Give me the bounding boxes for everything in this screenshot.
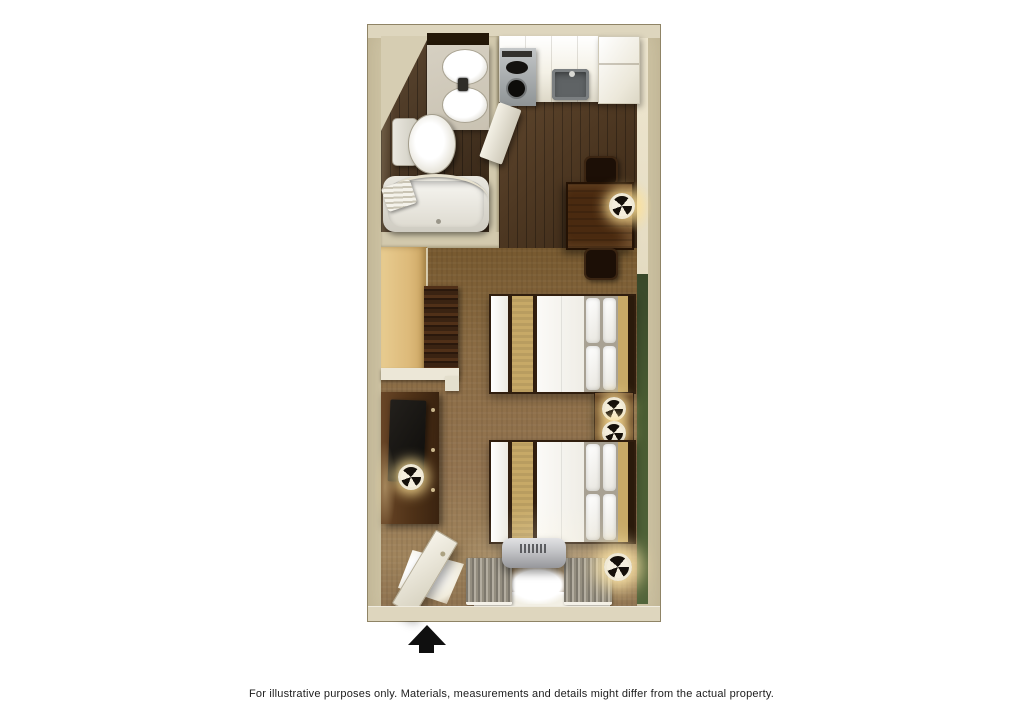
bottom-wall bbox=[368, 606, 660, 621]
pillow bbox=[586, 298, 600, 343]
pillow bbox=[586, 346, 600, 391]
disclaimer-caption: For illustrative purposes only. Material… bbox=[0, 688, 1023, 700]
hanging-clothes bbox=[424, 286, 458, 376]
sink-faucet-icon bbox=[458, 78, 468, 91]
kitchen-sink bbox=[552, 69, 589, 100]
pillow bbox=[586, 494, 600, 541]
dresser-lamp-icon bbox=[398, 464, 424, 490]
closet-shelf-corner bbox=[445, 376, 459, 391]
bed-headboard bbox=[618, 296, 634, 392]
bed-2 bbox=[489, 440, 636, 544]
floor-plan bbox=[368, 25, 660, 621]
closet-panel bbox=[381, 247, 427, 375]
bed-duvet bbox=[537, 296, 584, 392]
bed-pillows bbox=[584, 296, 618, 392]
bathroom-bottom-wall bbox=[381, 232, 499, 248]
drawer-knob-icon bbox=[431, 448, 435, 452]
page: { "caption": { "text": "For illustrative… bbox=[0, 0, 1023, 716]
bed-foot-cover bbox=[491, 296, 508, 392]
table-lamp-icon bbox=[609, 193, 635, 219]
bed-headboard bbox=[618, 442, 634, 542]
drawer-knob-icon bbox=[431, 408, 435, 412]
entrance-arrow-icon bbox=[408, 625, 446, 645]
pillow bbox=[603, 298, 617, 343]
bed-runner-stripe bbox=[512, 442, 533, 542]
bed-duvet bbox=[537, 442, 584, 542]
bed-1 bbox=[489, 294, 636, 394]
window-glass-glow bbox=[506, 566, 568, 604]
bed-foot-cover bbox=[491, 442, 508, 542]
dining-chair bbox=[584, 248, 618, 280]
pillow bbox=[586, 444, 600, 491]
bed-pillows bbox=[584, 442, 618, 542]
bed-runner-stripe bbox=[512, 296, 533, 392]
stove-control-panel bbox=[502, 51, 532, 57]
pillow bbox=[603, 494, 617, 541]
bathtub-drain-icon bbox=[436, 219, 441, 224]
ac-heating-unit bbox=[502, 538, 566, 568]
nightstand-lamp-icon bbox=[602, 397, 626, 421]
stove-burner-icon bbox=[508, 80, 525, 97]
refrigerator bbox=[598, 36, 640, 104]
floor-lamp-icon bbox=[604, 553, 632, 581]
pillow bbox=[603, 346, 617, 391]
drawer-knob-icon bbox=[431, 488, 435, 492]
ac-vent-grille-icon bbox=[520, 544, 548, 553]
vanity-sink-reflection-icon bbox=[442, 87, 488, 123]
stove-burner-icon bbox=[506, 61, 528, 74]
pillow bbox=[603, 444, 617, 491]
toilet-icon bbox=[408, 114, 456, 174]
bathroom-mirror-shelf bbox=[427, 33, 489, 45]
entrance-arrow-stem bbox=[419, 644, 434, 653]
green-accent-wall bbox=[637, 274, 648, 604]
